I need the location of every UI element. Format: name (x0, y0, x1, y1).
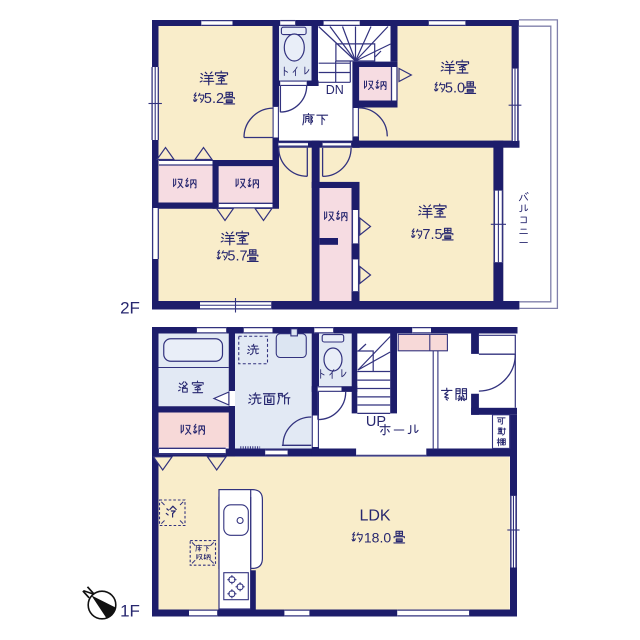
svg-text:2F: 2F (120, 299, 140, 318)
svg-text:LDK: LDK (359, 508, 390, 525)
svg-text:5.7: 5.7 (227, 249, 247, 265)
svg-text:UP: UP (366, 414, 386, 430)
svg-text:5.0: 5.0 (445, 81, 465, 97)
svg-text:1F: 1F (120, 602, 140, 621)
svg-text:7.5: 7.5 (422, 227, 442, 243)
svg-text:5.2: 5.2 (204, 91, 224, 107)
svg-text:DN: DN (326, 83, 344, 97)
svg-text:18.0: 18.0 (364, 530, 391, 546)
